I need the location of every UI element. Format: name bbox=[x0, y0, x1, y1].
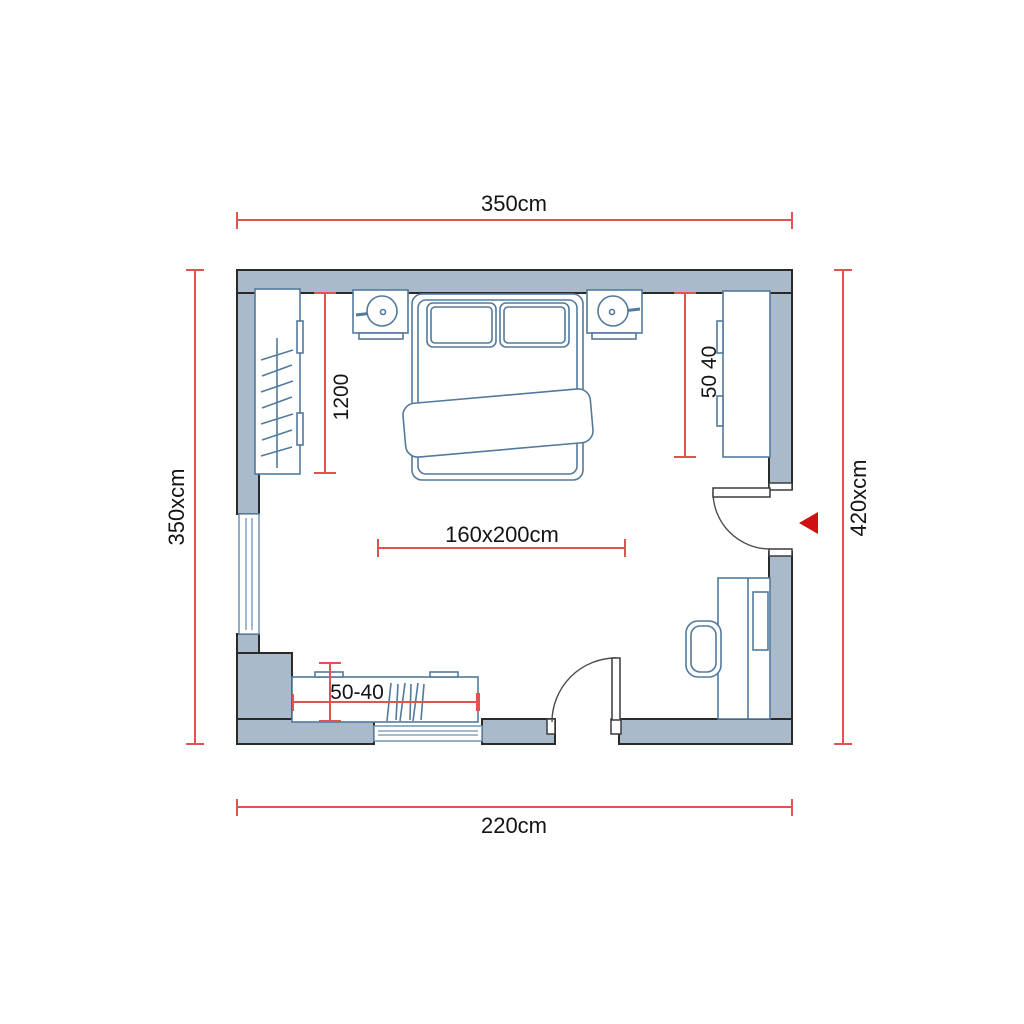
cabinet-body bbox=[723, 291, 770, 457]
door-swing-arc bbox=[552, 658, 616, 722]
window-bottom-frame bbox=[374, 726, 482, 741]
dimension-cabinet: 50 40 bbox=[674, 293, 721, 457]
door-frame bbox=[769, 549, 792, 556]
door-frame bbox=[769, 483, 792, 490]
door-swing-arc bbox=[713, 492, 770, 549]
dimension-bottom: 220cm bbox=[237, 799, 792, 838]
dim-label-top: 350cm bbox=[481, 191, 547, 216]
lamp-center bbox=[381, 310, 386, 315]
pillow-left-inner bbox=[431, 307, 492, 343]
wall-right-upper bbox=[769, 293, 792, 489]
door-frame bbox=[611, 719, 621, 734]
wall-left-mid bbox=[237, 634, 259, 654]
door-bottom bbox=[547, 658, 621, 734]
dim-label-cabinet: 50 40 bbox=[698, 346, 721, 399]
dimension-bed: 160x200cm bbox=[378, 522, 625, 557]
dim-label-dresser: 50-40 bbox=[330, 681, 384, 704]
wall-bottom-mid bbox=[482, 719, 555, 744]
wardrobe-left bbox=[255, 289, 303, 474]
wardrobe-handle bbox=[297, 413, 303, 445]
wall-left-thick bbox=[237, 653, 292, 720]
dim-label-right: 420xcm bbox=[846, 459, 871, 536]
nightstand-base bbox=[592, 333, 636, 339]
office-chair bbox=[686, 621, 721, 677]
dimension-wardrobe: 1200 bbox=[314, 293, 353, 473]
dresser-handle bbox=[430, 672, 458, 677]
dimension-right: 420xcm bbox=[834, 270, 871, 744]
cabinet-right bbox=[717, 291, 770, 457]
dim-label-bed: 160x200cm bbox=[445, 522, 559, 547]
dim-label-left: 350xcm bbox=[164, 468, 189, 545]
pillow-right-inner bbox=[504, 307, 565, 343]
dresser-bottom bbox=[292, 672, 478, 722]
entrance-arrow bbox=[799, 512, 818, 534]
window-bottom bbox=[374, 726, 482, 741]
desk-monitor bbox=[753, 592, 768, 650]
floor-plan-drawing: 350cm 220cm 350xcm 420xcm 160x200cm 1200… bbox=[0, 0, 1024, 1024]
window-left-frame bbox=[239, 514, 259, 634]
window-left bbox=[239, 514, 259, 634]
dresser-body bbox=[292, 677, 478, 722]
wardrobe-handle bbox=[297, 321, 303, 353]
desk bbox=[718, 578, 770, 719]
wall-bottom-right bbox=[619, 719, 792, 744]
door-leaf bbox=[713, 488, 770, 497]
dim-label-wardrobe: 1200 bbox=[330, 374, 353, 421]
door-right bbox=[713, 483, 792, 556]
cabinet-handle bbox=[717, 396, 723, 426]
door-frame bbox=[547, 719, 555, 734]
dim-label-bottom: 220cm bbox=[481, 813, 547, 838]
chair-seat bbox=[691, 626, 716, 672]
wall-top bbox=[237, 270, 792, 293]
dimension-left: 350xcm bbox=[164, 270, 204, 744]
wall-right-lower bbox=[769, 552, 792, 719]
door-leaf bbox=[612, 658, 620, 720]
lamp-center bbox=[610, 310, 615, 315]
nightstand-right bbox=[587, 290, 642, 339]
floor-plan-canvas: 350cm 220cm 350xcm 420xcm 160x200cm 1200… bbox=[0, 0, 1024, 1024]
nightstand-left bbox=[353, 290, 408, 339]
dimension-top: 350cm bbox=[237, 191, 792, 229]
nightstand-base bbox=[359, 333, 403, 339]
double-bed bbox=[402, 294, 594, 480]
